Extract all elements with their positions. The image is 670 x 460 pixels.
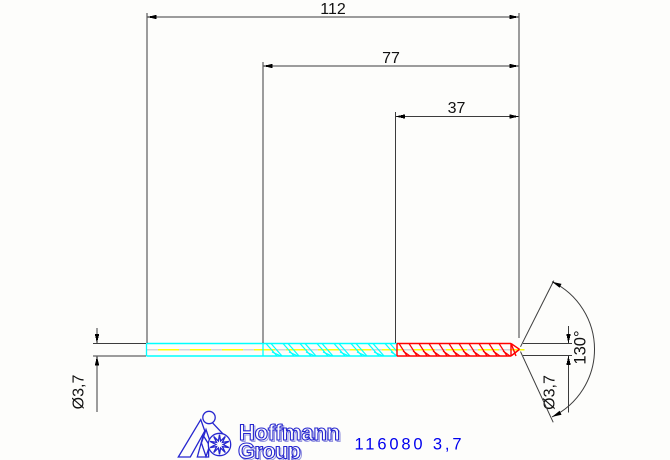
svg-text:Group: Group	[238, 439, 301, 460]
svg-text:112: 112	[320, 1, 346, 18]
svg-text:Ø3,7: Ø3,7	[542, 375, 559, 410]
svg-text:77: 77	[382, 50, 400, 67]
svg-text:116080 3,7: 116080 3,7	[355, 436, 465, 454]
svg-text:Ø3,7: Ø3,7	[71, 375, 88, 410]
svg-text:37: 37	[448, 100, 466, 117]
svg-text:130°: 130°	[572, 330, 590, 364]
